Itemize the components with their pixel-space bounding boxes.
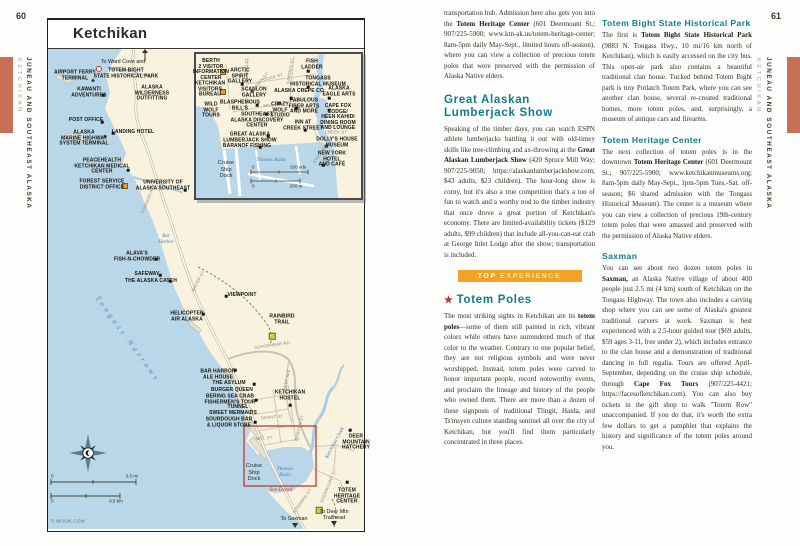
map-marker-sq	[184, 189, 187, 192]
bold-text: Totem Heritage Center	[456, 20, 529, 28]
map-marker-sq	[267, 135, 270, 138]
section-heading-top-experience: ★Totem Poles	[444, 294, 595, 307]
map-marker-sq	[127, 169, 130, 172]
body-text: (420 Spruce Mill Way; 907/225-9050; http…	[444, 156, 595, 259]
body-text: Speaking of the timber days, you can wat…	[444, 125, 595, 154]
banner-strong: TOP	[478, 273, 500, 280]
map-title-bar: Ketchikan	[48, 20, 364, 49]
bold-text: Totem Bight State Historical Park	[641, 31, 752, 39]
bold-text: Cape Fox Tours	[634, 380, 698, 388]
body-text: (601 Deermount St.; 907/225-5900; www.ke…	[602, 158, 752, 240]
paragraph: transportation hub. Admission here also …	[444, 8, 595, 82]
chapter-tab-right	[787, 57, 800, 133]
paragraph: The first is Totem Bight State Historica…	[602, 30, 752, 125]
map-marker-sq	[328, 97, 331, 100]
paragraph: You can see about two dozen totem poles …	[602, 263, 752, 452]
map-marker-sq	[253, 383, 256, 386]
body-text: You can see about two dozen totem poles …	[602, 264, 752, 272]
map-marker-sq	[346, 481, 349, 484]
star-icon: ★	[444, 295, 454, 306]
body-text: an Alaska Native village of about 400 pe…	[602, 275, 752, 388]
map-title: Ketchikan	[73, 25, 147, 42]
inset-graphics	[196, 54, 361, 198]
creek-upper	[334, 365, 344, 387]
map-marker-sq	[289, 404, 292, 407]
map-marker-sq	[112, 132, 115, 135]
map-marker-sq	[295, 107, 298, 110]
map-marker-tri	[91, 79, 95, 82]
map-content: BERTH 2 VISITOR INFORMATION CENTERKETCHI…	[48, 49, 364, 529]
body-text: —some of them still painted in rich, vib…	[444, 323, 595, 447]
map-marker-sq	[159, 274, 162, 277]
guidebook-spread: 60 KETCHIKAN JUNEAU AND SOUTHEAST ALASKA…	[0, 0, 800, 546]
subsection-heading: Totem Heritage Center	[602, 135, 752, 145]
map-marker-sq	[251, 90, 254, 93]
map-marker-trail	[316, 507, 323, 514]
map-marker-info	[122, 183, 128, 189]
paragraph: The next collection of totem poles is in…	[602, 147, 752, 242]
page-number-left: 60	[16, 11, 26, 21]
map-marker-sq	[225, 295, 228, 298]
map-marker-info	[220, 69, 226, 75]
map-marker-sq	[101, 121, 104, 124]
map-marker-sq	[265, 113, 268, 116]
body-text: (907/225-4421; https://facesofketchikan.…	[602, 380, 752, 451]
banner-rest: EXPERIENCE	[500, 273, 561, 280]
ketchikan-creek-line	[310, 387, 334, 453]
section-heading: Great Alaskan Lumberjack Show	[444, 94, 595, 120]
article-column-right: Totem Bight State Historical ParkThe fir…	[602, 8, 752, 452]
map-marker-sq	[307, 86, 310, 89]
paragraph: Speaking of the timber days, you can wat…	[444, 124, 595, 261]
chapter-tab-left	[0, 57, 13, 133]
map-marker-sq	[255, 399, 258, 402]
map-marker-sq	[234, 369, 237, 372]
map-marker-sq	[155, 258, 158, 261]
body-text: The most striking sights in Ketchikan ar…	[444, 312, 578, 320]
map-marker-sq	[278, 102, 281, 105]
map-marker-sq	[202, 313, 205, 316]
map-marker-sq	[349, 429, 352, 432]
chapter-label-left: KETCHIKAN	[16, 58, 22, 114]
map-marker-info	[220, 89, 226, 95]
map-marker-sq	[256, 104, 259, 107]
map-marker-sq	[307, 70, 310, 73]
map-marker-sq	[304, 129, 307, 132]
map-marker-trail	[269, 333, 276, 340]
subsection-heading: Totem Bight State Historical Park	[602, 18, 752, 28]
carlanna-creek	[108, 67, 150, 77]
page-number-right: 61	[771, 11, 781, 21]
map-marker-sq	[102, 94, 105, 97]
downtown-inset-map: BERTH 2 VISITOR INFORMATION CENTERKETCHI…	[194, 52, 363, 200]
body-text: (9883 N. Tongass Hwy., 10 mi/16 km north…	[602, 42, 752, 124]
heading-text: Totem Poles	[457, 294, 532, 306]
map-marker-sq	[169, 280, 172, 283]
inset-thomas-basin	[216, 142, 338, 198]
map-marker-sq	[241, 83, 244, 86]
bold-text: Totem Heritage Center	[634, 158, 704, 166]
map-marker-sq	[325, 145, 328, 148]
bold-text: Saxman,	[602, 275, 628, 283]
region-label-right: JUNEAU AND SOUTHEAST ALASKA	[765, 57, 772, 210]
chapter-label-right: KETCHIKAN	[755, 58, 761, 114]
subsection-heading: Saxman	[602, 251, 752, 261]
body-text: (601 Deermount St.; 907/225-5900; www.kt…	[444, 20, 595, 81]
ketchikan-map: Ketchikan	[47, 18, 365, 532]
map-marker-sq	[322, 164, 325, 167]
body-text: The first is	[602, 31, 641, 39]
region-label-left: JUNEAU AND SOUTHEAST ALASKA	[25, 57, 32, 210]
top-experience-banner: TOP EXPERIENCE	[458, 270, 582, 282]
map-marker-sq	[259, 146, 262, 149]
map-marker-sq	[328, 109, 331, 112]
article-column-left: transportation hub. Admission here also …	[444, 8, 595, 448]
paragraph: The most striking sights in Ketchikan ar…	[444, 311, 595, 448]
map-marker-tri	[103, 135, 107, 138]
map-marker-sq	[254, 421, 257, 424]
map-marker-sq	[290, 97, 293, 100]
